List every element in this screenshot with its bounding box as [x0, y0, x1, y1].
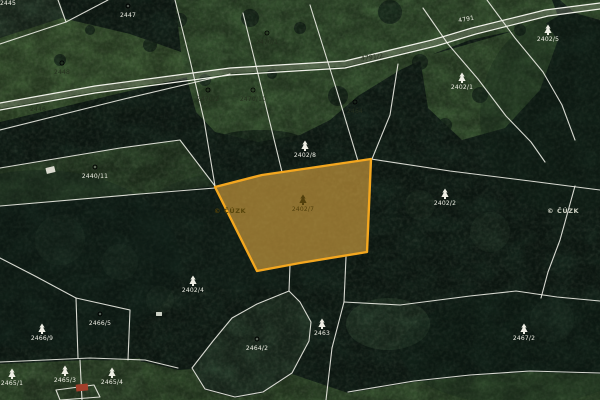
parcel-number: 2466/5 [89, 320, 111, 327]
parcel-number: 2470/10 [240, 96, 266, 103]
parcel-number: 2466/9 [31, 335, 53, 342]
parcel-number: 2402/4 [182, 287, 204, 294]
parcel-number: 2465/1 [1, 380, 23, 387]
land-use-dot [354, 101, 355, 102]
copyright-watermark: © ČÚZK [214, 206, 247, 215]
building [76, 383, 89, 391]
land-use-dot [61, 62, 62, 63]
parcel-number: 2445 [0, 0, 16, 7]
copyright-watermark: © ČÚZK [547, 206, 580, 215]
parcel-number: 2402/5 [537, 36, 559, 43]
parcel-number: 2465/4 [101, 379, 123, 386]
land-use-dot [207, 89, 208, 90]
parcel-number: 2402/8 [294, 152, 316, 159]
parcel-number: 2470/1 [256, 39, 278, 46]
parcel-number: 2464/2 [246, 345, 268, 352]
parcel-number: 2402/2 [434, 200, 456, 207]
parcel-number: 2463 [314, 330, 330, 337]
land-use-dot [252, 89, 253, 90]
land-use-dot [266, 32, 267, 33]
map-canvas[interactable]: 2402/72470/22470/102470/124642402/124482… [0, 0, 600, 400]
parcel-number: 2402/7 [292, 206, 314, 213]
parcel-number: 2440/11 [82, 173, 108, 180]
land-use-dot [94, 166, 95, 167]
land-use-dot [99, 313, 100, 314]
parcel-label: 2445 [0, 0, 16, 7]
parcel-number: 2464 [347, 108, 363, 115]
parcel-number: 2402/1 [451, 84, 473, 91]
parcel-number: 2448 [54, 69, 70, 76]
land-use-dot [256, 338, 257, 339]
parcel-number: 2447 [120, 12, 136, 19]
land-use-dot [127, 5, 128, 6]
cadastral-satellite-map[interactable]: 2402/72470/22470/102470/124642402/124482… [0, 0, 600, 400]
parcel-number: 2465/3 [54, 377, 76, 384]
parcel-label: 2446 [30, 106, 46, 113]
parcel-number: 2467/2 [513, 335, 535, 342]
parcel-number: 2446 [30, 106, 46, 113]
parcel-number: 2470/2 [197, 96, 219, 103]
building [156, 312, 162, 316]
